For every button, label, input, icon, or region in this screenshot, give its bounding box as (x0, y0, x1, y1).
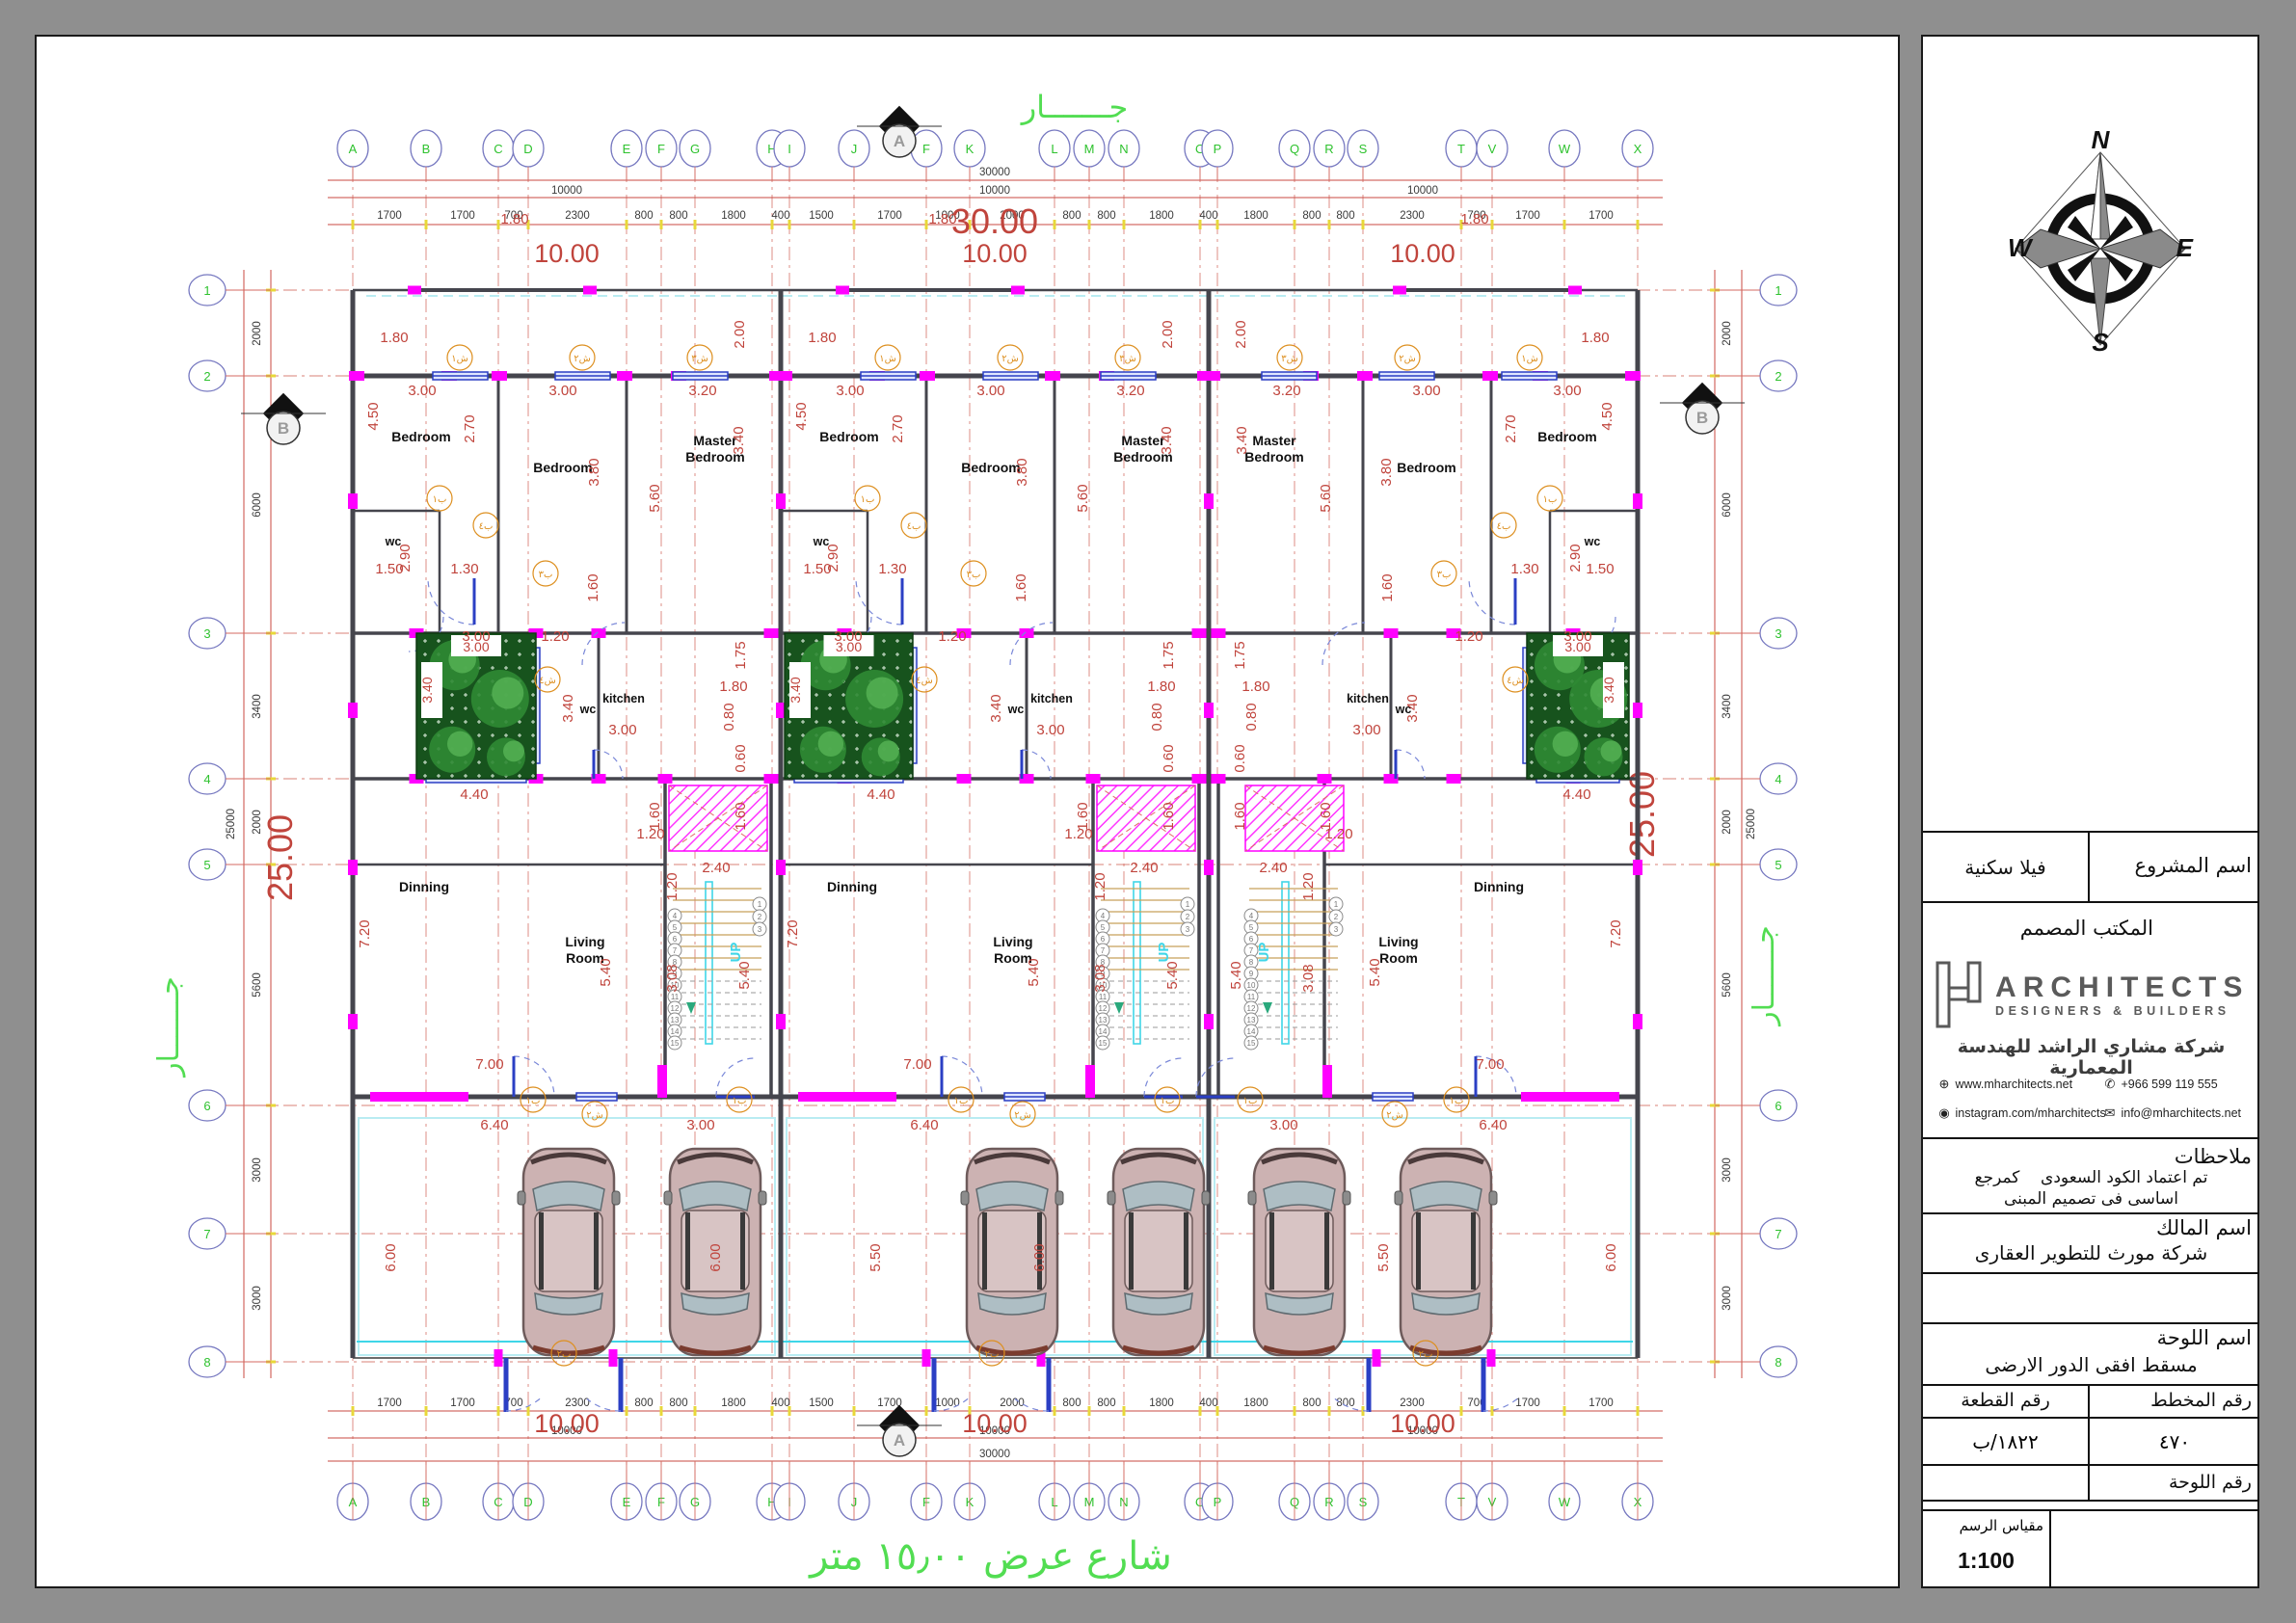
dim-label: 3.00 (462, 628, 490, 645)
mm-dim: 800 (1302, 210, 1321, 222)
step-number-text: 5 (1101, 923, 1106, 932)
grid-bubble-number: 6 (203, 1099, 210, 1113)
section-marker-letter: A (894, 1431, 905, 1450)
room-label: Bedroom (819, 429, 878, 444)
step-number-text: 3 (1186, 925, 1190, 934)
plan-shape (1248, 1191, 1256, 1205)
grid-bubble-number: 1 (203, 283, 210, 298)
column-block (1521, 1092, 1619, 1102)
step-number-text: 15 (1247, 1039, 1256, 1048)
project-name-label: اسم المشروع (2135, 854, 2252, 877)
sheet-name-value: مسقط افقى الدور الارضى (1923, 1353, 2259, 1376)
dim-label: 7.00 (475, 1056, 503, 1073)
grid-bubble-letter: P (1214, 142, 1222, 156)
dim-label: 1.50 (803, 561, 831, 577)
up-label: UP (1156, 943, 1172, 963)
dim-label: 3.40 (988, 694, 1004, 722)
column-block (583, 286, 597, 295)
mm-dim: 10000 (1407, 185, 1438, 197)
step-number-text: 13 (671, 1016, 680, 1024)
mm-dim: 400 (771, 1397, 789, 1409)
dim-label: 2.70 (462, 414, 478, 442)
mm-dim: 10000 (551, 185, 582, 197)
column-block (764, 628, 779, 638)
column-block (494, 1349, 503, 1367)
grid-bubble-number: 4 (1775, 772, 1781, 786)
column-block (1212, 774, 1226, 784)
grid-bubble-number: 2 (1775, 369, 1781, 384)
scale-cell: مقياس الرسم 1:100 (1923, 1511, 2051, 1588)
dim-label: 3.00 (1412, 383, 1440, 399)
opening-tag-text: ب١ (526, 1096, 541, 1106)
step-number-text: 7 (673, 946, 678, 955)
opening-tag-text: ش٣ (1119, 354, 1136, 364)
mm-dim: 1700 (377, 210, 402, 222)
door-swing-arc (514, 1056, 554, 1097)
plan-shape (535, 1211, 602, 1291)
sheet-name-label: اسم اللوحة (2157, 1326, 2252, 1349)
overall-depth: 25.00 (1622, 771, 1662, 858)
column-block (1633, 860, 1642, 875)
email-text: info@mharchitects.net (2121, 1106, 2241, 1120)
column-block (798, 1092, 896, 1102)
mm-dim: 30000 (979, 1449, 1010, 1460)
grid-bubble-number: 3 (203, 626, 210, 641)
owner-value: شركة مورث للتطوير العقارى (1923, 1241, 2259, 1264)
opening-tag-text: ب٢ (985, 1349, 1000, 1360)
column-block (1086, 774, 1101, 784)
titleblock-divider (1898, 35, 1923, 1588)
step-number-text: 7 (1249, 946, 1254, 955)
grid-bubble-letter: N (1119, 142, 1128, 156)
column-block (1625, 371, 1641, 381)
grid-bubble-letter: F (657, 142, 665, 156)
website-text: www.mharchitects.net (1955, 1078, 2072, 1091)
column-block (776, 860, 786, 875)
grid-bubble-number: 7 (1775, 1227, 1781, 1241)
column-block (1633, 493, 1642, 509)
dim-label: 1.20 (1092, 872, 1108, 900)
plot-number-label: رقم القطعة (1923, 1390, 2088, 1411)
step-number-text: 11 (671, 993, 680, 1001)
column-block (1192, 774, 1207, 784)
grid-bubble-letter: X (1634, 142, 1642, 156)
opening-tag-text: ش٢ (574, 354, 591, 364)
owner-label: اسم المالك (2156, 1216, 2252, 1239)
opening-tag-text: ش٣ (691, 354, 708, 364)
dim-label: 1.60 (1379, 573, 1396, 601)
column-block (1205, 371, 1220, 381)
column-block (1487, 1349, 1496, 1367)
column-block (1192, 628, 1207, 638)
opening-tag-text: ش٤ (1507, 676, 1524, 686)
logo-main-text: ARCHITECTS (1995, 971, 2249, 1004)
opening-tag-text: ب٢ (557, 1349, 572, 1360)
column-block (1204, 703, 1214, 718)
titleblock: N S E W اسم المشروع فيلا سكنية المكتب ال… (1923, 35, 2259, 1588)
tree (878, 740, 899, 761)
opening-tag-text: ب٤ (479, 521, 494, 532)
up-label: UP (1256, 943, 1272, 963)
dim-label: 3.00 (1553, 383, 1581, 399)
column-block (592, 628, 606, 638)
column-block (408, 286, 421, 295)
notes-label: ملاحظات (2175, 1145, 2252, 1168)
mm-dim: 1700 (1515, 210, 1540, 222)
door-swing-arc (1483, 1398, 1517, 1411)
dim-label: 2.70 (890, 414, 906, 442)
door-swing-arc (1396, 750, 1425, 779)
mm-dim: 400 (1199, 1397, 1217, 1409)
email-item: ✉ info@mharchitects.net (2102, 1105, 2256, 1121)
cell-divider (2088, 1419, 2090, 1464)
court-dim: 3.40 (788, 677, 803, 703)
column-block (776, 493, 786, 509)
step-number-text: 4 (673, 912, 678, 920)
grid-bubble-number: 4 (203, 772, 210, 786)
dim-label: 2.40 (1259, 860, 1287, 876)
opening-tag-text: ب١ (1543, 494, 1558, 505)
opening-tag-text: ب١ (954, 1096, 969, 1106)
room-label: wc (1584, 535, 1601, 548)
court-dim: 3.40 (1601, 677, 1616, 703)
dim-label: 1.60 (1232, 802, 1248, 830)
mm-dim: 800 (669, 1397, 687, 1409)
dim-label: 3.00 (1563, 628, 1591, 645)
plan-shape (1055, 1191, 1063, 1205)
opening-tag-text: ش٢ (586, 1110, 603, 1121)
grid-bubble-number: 8 (1775, 1355, 1781, 1370)
dim-label: 3.40 (560, 694, 576, 722)
mm-dim: 2000 (1722, 810, 1733, 835)
dim-label: 2.00 (732, 320, 748, 348)
grid-bubble-letter: I (788, 142, 791, 156)
tree (503, 740, 524, 761)
dim-label: 6.00 (707, 1243, 724, 1271)
dim-label: 1.75 (1161, 641, 1177, 669)
stair-rail (1282, 882, 1289, 1044)
dim-label: 5.40 (1367, 958, 1383, 986)
mm-dim: 30000 (979, 167, 1010, 178)
step-number-text: 11 (1099, 993, 1108, 1001)
room-label: Living (565, 934, 604, 949)
opening-tag-text: ب٤ (907, 521, 921, 532)
instagram-icon: ◉ (1936, 1105, 1952, 1121)
grid-bubble-letter: D (523, 142, 532, 156)
plan-shape (1108, 1191, 1115, 1205)
dim-label: 4.40 (867, 786, 894, 803)
column-block (777, 371, 792, 381)
step-number-text: 15 (671, 1039, 680, 1048)
opening-tag-text: ش١ (1521, 354, 1538, 364)
step-number-text: 2 (758, 913, 762, 921)
step-number-text: 10 (1247, 981, 1256, 990)
dim-label: 3.08 (1300, 964, 1317, 992)
grid-bubble-letter: E (623, 142, 631, 156)
room-label: Dinning (1474, 879, 1524, 894)
street-label: شارع عرض ١٥٫٠٠ متر (808, 1534, 1172, 1579)
dim-label: 1.80 (1460, 211, 1488, 227)
mm-dim: 3000 (252, 1286, 263, 1311)
dim-label: 5.40 (1228, 961, 1244, 989)
step-number-text: 5 (673, 923, 678, 932)
column-block (1204, 493, 1214, 509)
column-block (348, 703, 358, 718)
opening-tag-text: ب١ (861, 494, 875, 505)
step-number-text: 11 (1247, 993, 1256, 1001)
dim-label: 1.80 (719, 678, 747, 695)
dim-label: 3.80 (1014, 458, 1030, 486)
mm-dim: 5600 (1722, 972, 1733, 998)
mm-dim: 1800 (1149, 210, 1174, 222)
mm-dim: 1700 (1589, 1397, 1614, 1409)
dim-label: 3.00 (836, 383, 864, 399)
stair-rail (706, 882, 712, 1044)
cell-divider (2088, 1466, 2090, 1500)
plan-shape (1324, 1212, 1329, 1290)
titleblock-sheetno-row: رقم اللوحة (1923, 1464, 2259, 1502)
column-block (1633, 1014, 1642, 1029)
dim-label: 1.60 (1013, 573, 1029, 601)
dim-label: 3.00 (548, 383, 576, 399)
column-block (776, 1014, 786, 1029)
column-block (1633, 703, 1642, 718)
car (1395, 1149, 1497, 1355)
up-label: UP (728, 943, 744, 963)
dim-label: 2.40 (702, 860, 730, 876)
mm-dim: 1700 (377, 1397, 402, 1409)
dim-label: 6.40 (1479, 1117, 1507, 1133)
mm-dim: 800 (634, 1397, 653, 1409)
opening-tag-text: ب١ (1161, 1096, 1175, 1106)
dim-label: 3.20 (1116, 383, 1144, 399)
plan-shape (961, 1191, 969, 1205)
tree (867, 677, 898, 708)
notes-line2: اساسى فى تصميم المبنى (1923, 1189, 2259, 1209)
tree (818, 732, 843, 757)
tree (1553, 732, 1578, 757)
dim-label: 1.30 (1510, 561, 1538, 577)
plan-shape (1129, 1212, 1134, 1290)
logo-h-icon (1934, 959, 1984, 1030)
mm-dim: 3000 (1722, 1286, 1733, 1311)
column-block (370, 1092, 468, 1102)
grid-bubble-number: 5 (1775, 858, 1781, 872)
opening-tag-text: ش٤ (916, 676, 933, 686)
office-logo: ARCHITECTS DESIGNERS & BUILDERS شركة مشا… (1923, 959, 2259, 1078)
titleblock-owner-row: اسم المالك شركة مورث للتطوير العقارى (1923, 1212, 2259, 1272)
dim-label: 0.60 (733, 744, 749, 772)
villa-width: 10.00 (962, 239, 1028, 268)
dim-label: 7.20 (785, 919, 801, 947)
dim-label: 0.80 (1243, 703, 1260, 731)
room-label: kitchen (602, 692, 645, 705)
dim-label: 1.20 (938, 628, 966, 645)
dim-label: 4.50 (365, 402, 382, 430)
neighbor-label-left: جـــــــار (152, 976, 186, 1078)
dim-label: 1.20 (664, 872, 681, 900)
column-block (1204, 1014, 1214, 1029)
grid-bubble-letter: L (1051, 142, 1057, 156)
column-block (1011, 286, 1025, 295)
titleblock-notes-row: ملاحظات تم اعتماد الكود السعودى كمرجع اس… (1923, 1137, 2259, 1212)
dim-label: 0.60 (1161, 744, 1177, 772)
car (1248, 1149, 1350, 1355)
car (518, 1149, 620, 1355)
dim-label: 5.60 (1075, 484, 1091, 512)
dim-label: 1.75 (1232, 641, 1248, 669)
opening-tag-text: ب١ (733, 1096, 747, 1106)
mm-dim: 1700 (877, 210, 902, 222)
cell-divider (2088, 833, 2090, 901)
titleblock-empty-row (1923, 1272, 2259, 1322)
opening-tag-text: ش٢ (1001, 354, 1019, 364)
grid-bubble-number: 1 (1775, 283, 1781, 298)
plan-shape (539, 1212, 544, 1290)
neighbor-label-right: جـــــــار (1748, 925, 1781, 1027)
villa-width: 10.00 (1390, 239, 1455, 268)
dim-label: 1.20 (636, 826, 664, 842)
dim-label: 7.00 (1476, 1056, 1504, 1073)
dim-label: 6.40 (910, 1117, 938, 1133)
step-number-text: 3 (758, 925, 762, 934)
mm-dim: 1700 (450, 1397, 475, 1409)
column-block (492, 371, 507, 381)
step-number-text: 3 (1334, 925, 1339, 934)
tree (492, 677, 523, 708)
dim-label: 1.30 (450, 561, 478, 577)
grid-bubble-letter: J (851, 142, 858, 156)
dim-label: 3.40 (1234, 426, 1250, 454)
neighbor-label-top: جـــــــار (1020, 89, 1129, 125)
dim-label: 6.00 (383, 1243, 399, 1271)
step-number-text: 4 (1249, 912, 1254, 920)
villa-width: 10.00 (534, 239, 600, 268)
dim-label: 1.80 (1581, 330, 1609, 346)
dim-label: 3.00 (1352, 722, 1380, 738)
room-label: Bedroom (1397, 460, 1455, 475)
dim-label: 3.80 (1378, 458, 1395, 486)
grid-bubble-number: 6 (1775, 1099, 1781, 1113)
room-label: Room (1379, 950, 1418, 966)
room-label: Dinning (827, 879, 877, 894)
column-block (957, 774, 972, 784)
plan-shape (518, 1191, 525, 1205)
dim-label: 1.60 (733, 802, 749, 830)
dim-label: 2.90 (1567, 544, 1584, 572)
mm-dim: 1800 (1149, 1397, 1174, 1409)
dim-label: 0.60 (1232, 744, 1248, 772)
step-number-text: 4 (1101, 912, 1106, 920)
room-label: wc (1007, 703, 1025, 716)
dim-label: 1.60 (585, 573, 601, 601)
mm-dim: 1700 (450, 210, 475, 222)
column-block (1447, 774, 1461, 784)
compass-e-label: E (2176, 233, 2194, 262)
tree (1601, 740, 1622, 761)
room-label: Bedroom (1537, 429, 1596, 444)
grid-bubble-letter: K (966, 142, 974, 156)
cell-divider (2088, 1386, 2090, 1417)
grid-bubble-letter: F (922, 142, 930, 156)
dim-label: 3.00 (686, 1117, 714, 1133)
mm-dim: 10000 (979, 185, 1010, 197)
opening-tag-text: ش١ (879, 354, 896, 364)
grid-bubble-number: 2 (203, 369, 210, 384)
door-swing-arc (1196, 1058, 1235, 1097)
column-block (1393, 286, 1406, 295)
dim-label: 1.20 (1300, 872, 1317, 900)
room-label: Living (1378, 934, 1418, 949)
step-number-text: 13 (1247, 1016, 1256, 1024)
plan-shape (740, 1212, 745, 1290)
stair-direction-arrow (1263, 1002, 1272, 1014)
mm-dim: 800 (1336, 1397, 1354, 1409)
mm-dim: 800 (1097, 210, 1115, 222)
room-label: kitchen (1347, 692, 1389, 705)
dim-label: 1.50 (375, 561, 403, 577)
room-label: kitchen (1030, 692, 1073, 705)
mm-dim: 1800 (1243, 210, 1268, 222)
dim-label: 4.50 (1599, 402, 1615, 430)
step-number-text: 12 (1247, 1004, 1256, 1013)
plan-number-label: رقم المخطط (2150, 1390, 2252, 1411)
dim-label: 0.80 (1149, 703, 1165, 731)
column-block (920, 371, 935, 381)
villa-width: 10.00 (962, 1409, 1028, 1438)
titleblock-office-row: المكتب المصمم ARCHITECTS DESIGNERS & BUI… (1923, 901, 2259, 1137)
room-label: Bedroom (391, 429, 450, 444)
court-dim: 3.40 (419, 677, 435, 703)
dim-label: 7.00 (903, 1056, 931, 1073)
dim-label: 3.00 (608, 722, 636, 738)
column-block (349, 371, 364, 381)
dim-label: 7.20 (1608, 919, 1624, 947)
opening-tag-text: ب١ (433, 494, 447, 505)
dim-label: 2.40 (1130, 860, 1158, 876)
plan-shape (594, 1212, 599, 1290)
step-number-text: 6 (1249, 935, 1254, 944)
column-block (1357, 371, 1373, 381)
stair-direction-arrow (1114, 1002, 1124, 1014)
grid-bubble-letter: A (349, 142, 358, 156)
opening-tag-text: ب٣ (1437, 570, 1452, 580)
project-name-value: فيلا سكنية (1923, 856, 2088, 879)
dim-label: 2.00 (1233, 320, 1249, 348)
plan-shape (1184, 1212, 1188, 1290)
room-label: Bedroom (533, 460, 592, 475)
step-number-text: 13 (1099, 1016, 1108, 1024)
step-number-text: 6 (673, 935, 678, 944)
mm-dim: 1000 (935, 1397, 960, 1409)
opening-tag-text: ش١ (451, 354, 468, 364)
dim-label: 3.40 (1404, 694, 1421, 722)
column-block (348, 1014, 358, 1029)
mm-dim: 3000 (1722, 1157, 1733, 1183)
dim-label: 1.80 (1147, 678, 1175, 695)
dim-label: 1.80 (500, 211, 528, 227)
step-number-text: 14 (1099, 1027, 1108, 1036)
step-number-text: 12 (671, 1004, 680, 1013)
opening-tag-text: ب٤ (1497, 521, 1511, 532)
mm-dim: 3400 (252, 694, 263, 719)
column-block (836, 286, 849, 295)
mm-dim: 800 (1097, 1397, 1115, 1409)
dim-label: 2.00 (1160, 320, 1176, 348)
mm-dim: 6000 (1722, 492, 1733, 518)
plan-shape (1471, 1212, 1476, 1290)
phone-text: +966 599 119 555 (2121, 1078, 2217, 1091)
